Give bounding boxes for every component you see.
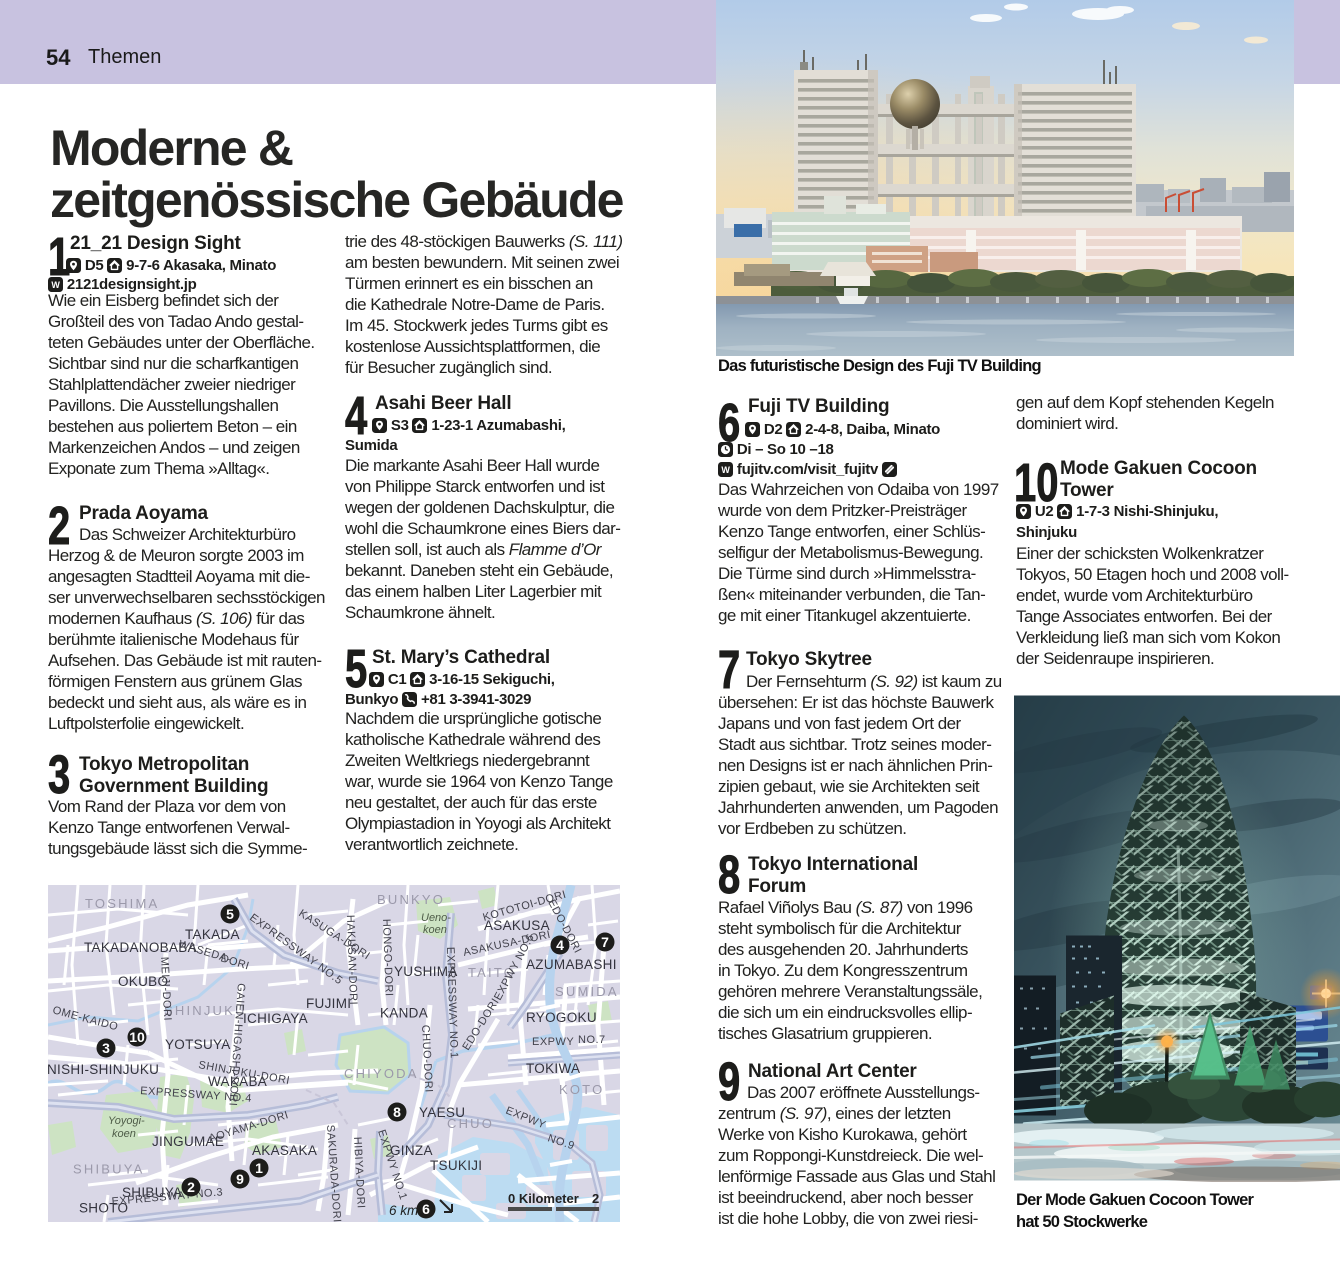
svg-text:9: 9 <box>236 1171 244 1187</box>
svg-text:TOKIWA: TOKIWA <box>526 1061 580 1076</box>
svg-text:Yoyogi-: Yoyogi- <box>108 1115 145 1127</box>
svg-text:6: 6 <box>422 1201 430 1217</box>
svg-text:AKASAKA: AKASAKA <box>252 1143 317 1158</box>
svg-text:8: 8 <box>393 1104 401 1120</box>
svg-text:FUJIMI: FUJIMI <box>306 996 351 1011</box>
svg-text:2: 2 <box>187 1179 195 1195</box>
svg-text:CHIYODA: CHIYODA <box>344 1066 419 1081</box>
svg-text:10: 10 <box>129 1029 145 1045</box>
svg-text:KANDA: KANDA <box>380 1006 428 1021</box>
svg-text:RYOGOKU: RYOGOKU <box>526 1010 597 1025</box>
svg-text:NO.7: NO.7 <box>578 1034 606 1046</box>
svg-text:0 Kilometer: 0 Kilometer <box>508 1191 579 1206</box>
svg-text:koen: koen <box>112 1128 136 1140</box>
svg-text:BUNKYO: BUNKYO <box>377 892 445 907</box>
svg-text:3: 3 <box>102 1040 110 1056</box>
svg-text:W: W <box>51 280 60 290</box>
svg-text:TSUKIJI: TSUKIJI <box>430 1158 482 1173</box>
svg-text:AZUMABASHI: AZUMABASHI <box>526 957 617 972</box>
svg-text:TOSHIMA: TOSHIMA <box>85 896 159 911</box>
svg-text:1: 1 <box>255 1160 263 1176</box>
svg-text:6 km: 6 km <box>389 1203 418 1218</box>
svg-text:4: 4 <box>556 937 564 953</box>
svg-text:YAESU: YAESU <box>419 1105 465 1120</box>
svg-text:SUMIDA: SUMIDA <box>555 984 619 999</box>
svg-text:Ueno-: Ueno- <box>421 912 451 924</box>
svg-text:SHIBUYA: SHIBUYA <box>73 1162 145 1177</box>
svg-text:koen: koen <box>423 924 447 936</box>
svg-text:NISHI-SHINJUKU: NISHI-SHINJUKU <box>48 1062 159 1077</box>
svg-text:EXPWY: EXPWY <box>532 1036 574 1048</box>
svg-text:KOTO: KOTO <box>559 1082 604 1097</box>
svg-text:2: 2 <box>592 1191 599 1206</box>
svg-text:7: 7 <box>601 934 609 950</box>
svg-text:YOTSUYA: YOTSUYA <box>165 1037 231 1052</box>
svg-text:ICHIGAYA: ICHIGAYA <box>243 1011 308 1026</box>
svg-text:5: 5 <box>226 906 234 922</box>
svg-text:W: W <box>721 465 730 475</box>
